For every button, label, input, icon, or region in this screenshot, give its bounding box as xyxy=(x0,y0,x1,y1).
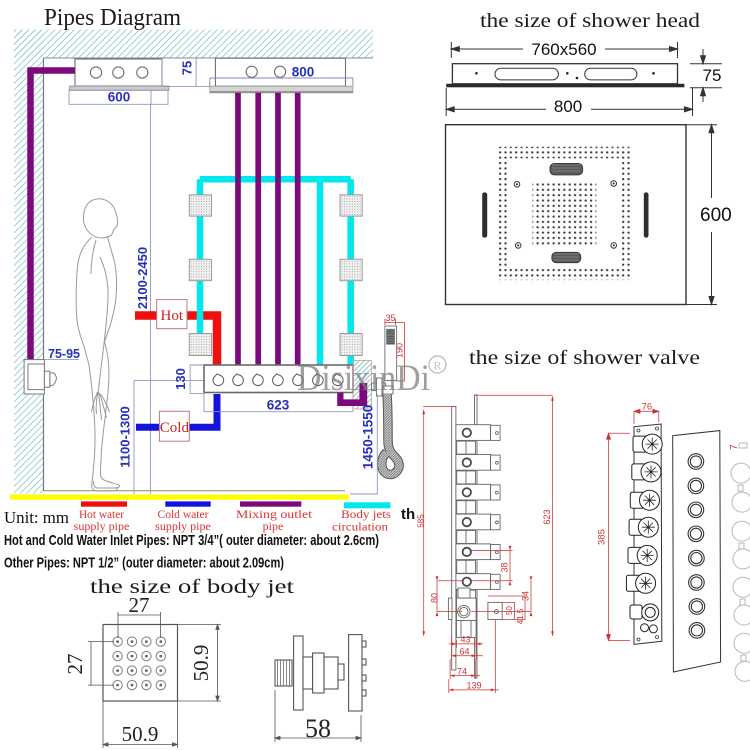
svg-text:50: 50 xyxy=(505,606,514,615)
svg-text:Cold: Cold xyxy=(160,420,190,436)
svg-text:Other Pipes: NPT 1/2” (outer d: Other Pipes: NPT 1/2” (outer diameter: a… xyxy=(4,555,284,572)
svg-text:1100-1300: 1100-1300 xyxy=(118,406,133,467)
svg-text:38: 38 xyxy=(500,562,510,572)
svg-text:27: 27 xyxy=(63,654,87,675)
svg-text:the size of shower head: the size of shower head xyxy=(480,10,700,32)
svg-text:41.5: 41.5 xyxy=(516,608,525,624)
svg-text:43: 43 xyxy=(460,635,470,645)
svg-text:34: 34 xyxy=(521,591,531,601)
svg-text:supply pipe: supply pipe xyxy=(74,519,130,533)
svg-text:130: 130 xyxy=(173,368,188,390)
svg-text:76: 76 xyxy=(642,402,653,413)
svg-text:139: 139 xyxy=(466,681,481,691)
svg-text:800: 800 xyxy=(554,97,582,116)
svg-text:the size of body jet: the size of body jet xyxy=(90,576,295,598)
svg-text:623: 623 xyxy=(542,509,552,524)
svg-text:Hot: Hot xyxy=(161,308,184,324)
svg-text:75: 75 xyxy=(703,66,722,85)
svg-text:74: 74 xyxy=(457,666,467,676)
svg-text:800: 800 xyxy=(292,65,315,80)
svg-text:Hot and Cold Water Inlet Pipes: Hot and Cold Water Inlet Pipes: NPT 3/4”… xyxy=(4,532,379,549)
svg-text:600: 600 xyxy=(700,205,732,226)
svg-text:supply pipe: supply pipe xyxy=(155,519,211,533)
svg-text:7: 7 xyxy=(729,444,740,450)
svg-text:600: 600 xyxy=(108,90,131,105)
svg-text:623: 623 xyxy=(267,398,290,413)
svg-text:64: 64 xyxy=(459,647,469,657)
svg-text:R: R xyxy=(433,359,441,373)
svg-text:80: 80 xyxy=(430,593,440,603)
svg-text:58: 58 xyxy=(305,714,331,743)
svg-text:27: 27 xyxy=(129,593,150,617)
svg-text:the size of shower valve: the size of shower valve xyxy=(469,347,700,369)
svg-text:Unit: mm: Unit: mm xyxy=(4,508,69,527)
svg-text:Pipes Diagram: Pipes Diagram xyxy=(44,5,181,31)
svg-text:75-95: 75-95 xyxy=(48,347,80,361)
svg-text:35: 35 xyxy=(385,313,395,323)
svg-text:385: 385 xyxy=(597,529,608,545)
svg-text:th: th xyxy=(401,506,415,523)
svg-text:pipe: pipe xyxy=(263,519,284,533)
svg-text:1450-1550: 1450-1550 xyxy=(361,405,376,470)
svg-text:DisixinDi: DisixinDi xyxy=(297,358,430,399)
svg-text:2100-2450: 2100-2450 xyxy=(135,247,150,309)
svg-text:760x560: 760x560 xyxy=(531,40,596,59)
svg-text:50.9: 50.9 xyxy=(122,722,159,746)
svg-text:75: 75 xyxy=(180,61,195,75)
svg-text:585: 585 xyxy=(417,514,426,528)
svg-text:50.9: 50.9 xyxy=(189,645,213,682)
